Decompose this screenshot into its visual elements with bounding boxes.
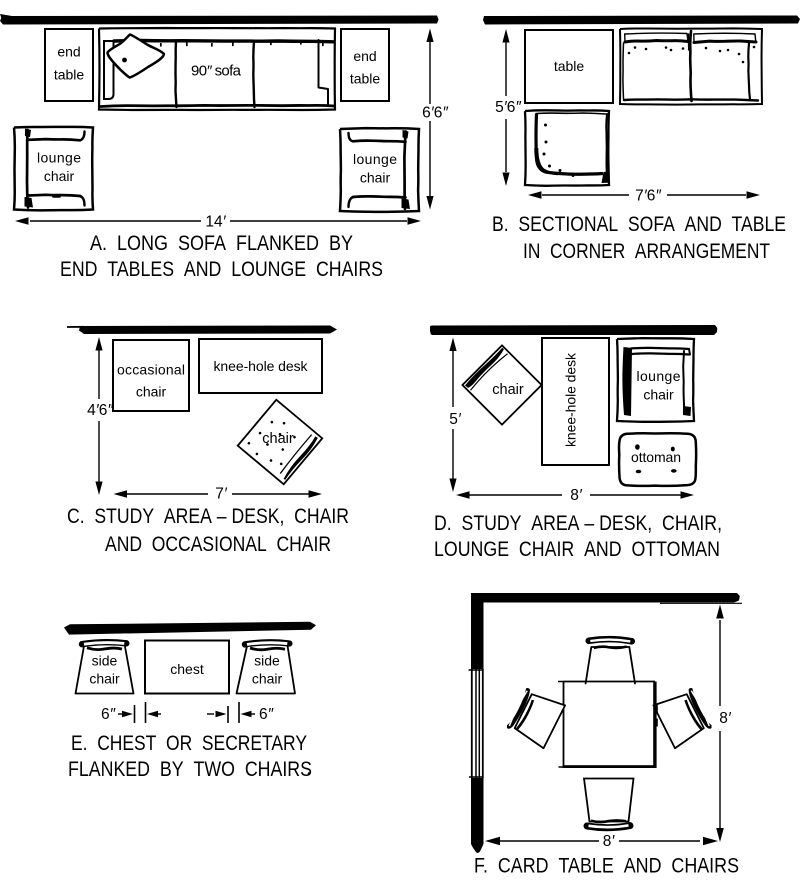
svg-text:chest: chest [170,661,204,677]
svg-text:chair: chair [360,170,391,186]
svg-text:knee-hole desk: knee-hole desk [563,352,579,447]
svg-text:8′: 8′ [570,487,583,504]
svg-text:8′: 8′ [603,833,616,850]
svg-text:ottoman: ottoman [631,449,681,465]
svg-text:chair: chair [492,382,524,398]
svg-text:END TABLES AND LOUNGE CHAI: END TABLES AND LOUNGE CHAIRS [60,258,383,281]
svg-text:D. STUDY AREA – DESK, CHAIR: D. STUDY AREA – DESK, CHAIR, [434,512,722,535]
svg-text:7′: 7′ [215,486,228,503]
svg-text:4′6″: 4′6″ [87,402,113,419]
svg-text:lounge: lounge [37,150,81,166]
svg-text:7′6″: 7′6″ [635,188,661,205]
svg-text:chair: chair [262,431,294,447]
svg-text:5′6″: 5′6″ [495,99,521,116]
svg-text:chair: chair [643,387,674,403]
svg-text:end: end [353,48,376,64]
svg-text:occasional: occasional [117,362,185,378]
svg-text:table: table [554,58,585,74]
svg-text:chair: chair [136,384,167,400]
svg-text:6″: 6″ [101,706,116,723]
svg-text:FLANKED BY TWO CHAIRS: FLANKED BY TWO CHAIRS [68,758,312,781]
svg-text:chair: chair [252,671,283,687]
svg-text:end: end [57,44,80,60]
svg-text:5′: 5′ [449,411,462,428]
svg-text:side: side [92,653,118,669]
svg-text:8′: 8′ [719,710,732,727]
svg-text:AND OCCASIONAL CHAIR: AND OCCASIONAL CHAIR [105,533,331,556]
svg-text:LOUNGE CHAIR AND OTTOMAN: LOUNGE CHAIR AND OTTOMAN [434,538,720,561]
svg-text:C. STUDY AREA – DESK, CHAIR: C. STUDY AREA – DESK, CHAIR [67,505,349,528]
svg-text:lounge: lounge [637,368,681,384]
svg-text:6′6″: 6′6″ [422,105,448,122]
svg-text:lounge: lounge [353,151,397,167]
svg-text:chair: chair [44,168,75,184]
svg-text:B. SECTIONAL SOFA AND TABL: B. SECTIONAL SOFA AND TABLE [492,213,786,236]
svg-text:IN CORNER ARRANGEMENT: IN CORNER ARRANGEMENT [523,240,770,263]
svg-text:14′: 14′ [205,214,226,231]
svg-text:table: table [350,71,381,87]
svg-text:90″ sofa: 90″ sofa [191,63,242,80]
svg-text:F. CARD TABLE AND CHAIRS: F. CARD TABLE AND CHAIRS [474,855,739,878]
svg-text:side: side [254,653,280,669]
svg-text:A. LONG SOFA FLANKED BY: A. LONG SOFA FLANKED BY [90,232,353,255]
svg-text:chair: chair [89,671,120,687]
svg-text:table: table [54,67,85,83]
svg-text:6″: 6″ [259,706,274,723]
svg-text:E. CHEST OR SECRETARY: E. CHEST OR SECRETARY [71,732,307,755]
svg-text:knee-hole desk: knee-hole desk [214,358,309,374]
